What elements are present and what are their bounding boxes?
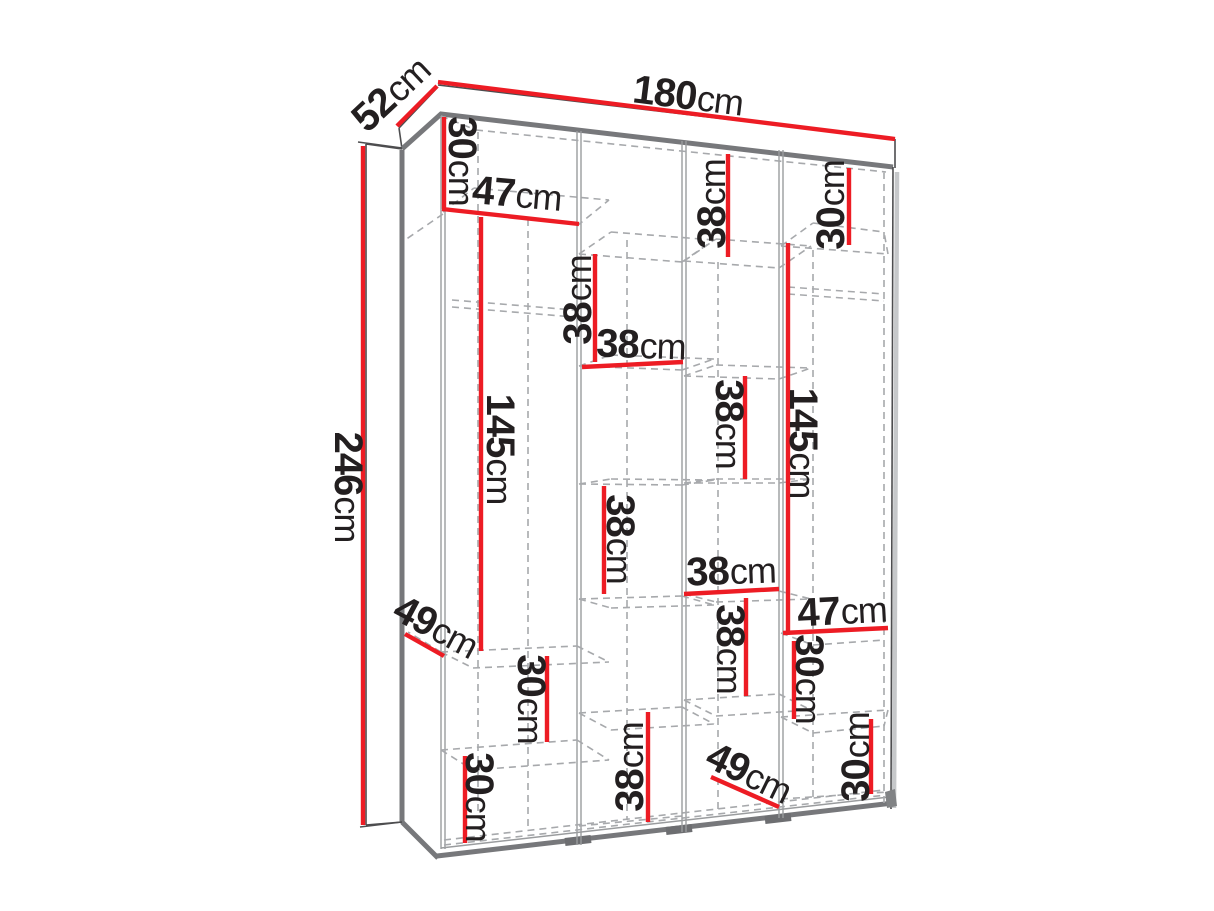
dimension-label: 38cm (707, 379, 751, 469)
dimension-col2-bottom-38: 38cm (608, 712, 652, 822)
dimension-label: 47cm (796, 587, 888, 636)
side-panel (366, 144, 402, 825)
dimension-col1-bottom-30: 30cm (457, 752, 501, 843)
dimension-label: 38cm (690, 159, 734, 249)
dimension-label: 30cm (834, 712, 878, 802)
dimension-col3-bottom-38: 38cm (708, 598, 752, 696)
wardrobe-dimension-diagram: 52cm180cm246cm30cm47cm145cm38cm38cm38cm3… (0, 0, 1214, 911)
dimension-col4-width-47: 47cm (783, 587, 888, 636)
dimension-label: 145cm (478, 394, 522, 505)
dimension-col2-mid-38: 38cm (598, 486, 642, 594)
dimension-col2-width-38: 38cm (582, 321, 686, 368)
dimension-label: 47cm (471, 168, 564, 220)
dimension-label: 30cm (787, 634, 831, 724)
dimension-label: 30cm (509, 654, 553, 744)
dimension-col4-top-30: 30cm (809, 160, 853, 250)
dimension-label: 38cm (708, 604, 752, 694)
dimension-col2-upper-38: 38cm (556, 254, 600, 362)
dimension-col4-height-145: 145cm (781, 243, 825, 631)
dimension-label: 49cm (699, 734, 799, 813)
dimension-label: 38cm (686, 547, 777, 594)
dimension-label: 30cm (809, 160, 853, 250)
dimension-col4-bottom-30: 30cm (834, 712, 878, 802)
dimension-label: 246cm (326, 432, 370, 543)
dimension-label: 38cm (556, 255, 600, 345)
dimension-label: 38cm (608, 722, 652, 812)
dimension-col1-mid-30: 30cm (509, 654, 553, 744)
dimension-col3-width-38: 38cm (684, 547, 779, 594)
dimension-depth-shelf-49-lower: 49cm (699, 734, 799, 813)
dimension-col3-mid-38: 38cm (707, 376, 751, 479)
dimension-label: 30cm (457, 752, 501, 842)
dimension-label: 38cm (596, 321, 687, 368)
dimension-label: 38cm (598, 494, 642, 584)
wardrobe-diagram-svg: 52cm180cm246cm30cm47cm145cm38cm38cm38cm3… (0, 0, 1214, 911)
dimension-col3-top-38: 38cm (690, 154, 734, 257)
dimension-col1-height-145: 145cm (478, 217, 522, 651)
dimension-col4-mid-30: 30cm (787, 634, 831, 724)
plinth-corner (885, 789, 897, 808)
dimension-label: 145cm (781, 388, 825, 499)
dimension-annotations: 52cm180cm246cm30cm47cm145cm38cm38cm38cm3… (326, 47, 895, 843)
dimension-height-left-246: 246cm (326, 146, 370, 825)
